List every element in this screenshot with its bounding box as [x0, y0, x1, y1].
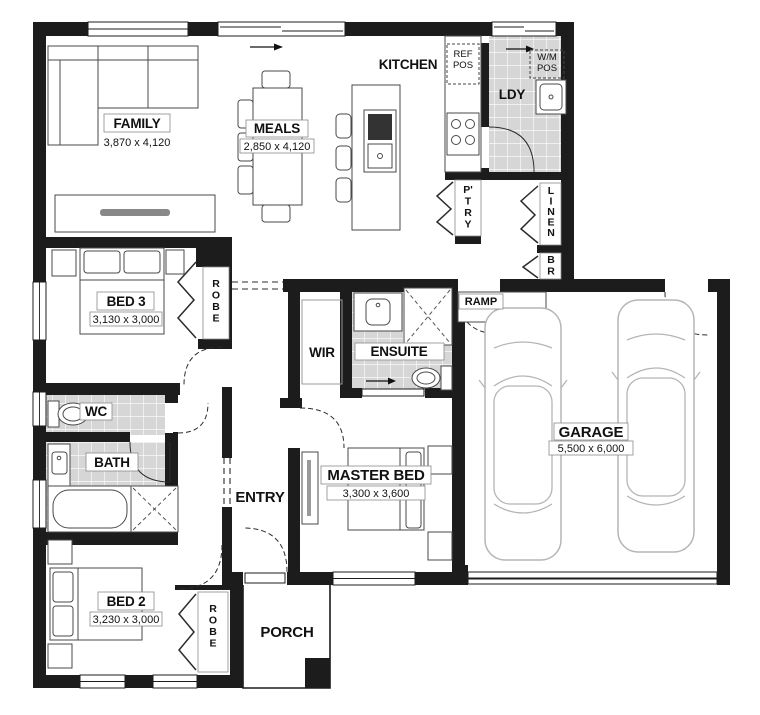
bed3-dims: 3,130 x 3,000	[93, 314, 160, 326]
bed2-label: BED 2	[107, 594, 146, 609]
cooktop	[447, 113, 479, 155]
bedside-table	[48, 644, 72, 668]
bed2-dims: 3,230 x 3,000	[93, 614, 160, 626]
floor-plan-drawing: FAMILY 3,870 x 4,120 MEALS 2,850 x 4,120…	[0, 0, 760, 715]
bed2-robe-label: ROBE	[209, 603, 217, 650]
ensuite-shower	[404, 288, 452, 345]
meals-dims: 2,850 x 4,120	[244, 141, 311, 153]
fridge-pos-label-1: REF	[454, 49, 473, 60]
toilet-tank	[48, 401, 59, 427]
bath-window	[33, 480, 46, 528]
ramp-label: RAMP	[465, 296, 497, 308]
fridge-pos-label-2: POS	[453, 60, 473, 71]
pillow	[53, 606, 73, 636]
bed2-window-left	[80, 675, 125, 688]
bedside-table	[48, 540, 72, 564]
entry-label: ENTRY	[235, 489, 284, 506]
porch-post	[305, 658, 330, 688]
bedside-table	[428, 446, 452, 474]
ensuite-label: ENSUITE	[370, 344, 427, 359]
bath-label: BATH	[94, 455, 130, 470]
bath-shower	[131, 486, 178, 532]
broom-label: BR	[547, 254, 555, 278]
master-bed-label: MASTER BED	[327, 467, 425, 484]
wir-label: WIR	[309, 345, 335, 360]
washer-pos-label-1: W/M	[537, 52, 557, 63]
porch-label: PORCH	[260, 624, 313, 641]
front-door-leaf	[245, 573, 285, 583]
basin	[52, 452, 67, 474]
master-bed-window	[333, 572, 415, 585]
pantry-label: P'TRY	[463, 184, 473, 231]
wc-label: WC	[85, 404, 108, 419]
family-label: FAMILY	[113, 116, 160, 131]
meals-label: MEALS	[254, 121, 300, 136]
floor-plan: FAMILY 3,870 x 4,120 MEALS 2,850 x 4,120…	[0, 0, 760, 715]
sink-bowl	[368, 114, 392, 140]
stool	[336, 178, 351, 202]
bed3-robe-label: ROBE	[212, 278, 220, 325]
kitchen-label: KITCHEN	[379, 57, 438, 72]
bedside-table	[52, 250, 76, 276]
bed3-window	[33, 282, 46, 340]
mirror	[307, 460, 311, 516]
family-dims: 3,870 x 4,120	[104, 137, 171, 149]
stool	[336, 114, 351, 138]
bedside-table	[166, 250, 184, 274]
washer-pos-label-2: POS	[537, 63, 557, 74]
laundry-label: LDY	[499, 87, 526, 102]
ensuite-toilet-bowl	[412, 368, 440, 388]
pillow	[53, 572, 73, 602]
master-bed-dims: 3,300 x 3,600	[343, 488, 410, 500]
linen-label: LINEN	[547, 185, 555, 239]
tv	[100, 209, 170, 216]
bed3-label: BED 3	[107, 294, 146, 309]
family-window	[88, 22, 188, 36]
garage-label: GARAGE	[559, 424, 624, 441]
wc-window	[33, 392, 46, 426]
pillow	[124, 251, 160, 273]
tv-unit	[55, 195, 215, 232]
pillow	[84, 251, 120, 273]
ensuite-toilet-tank	[441, 366, 452, 390]
garage-dims: 5,500 x 6,000	[558, 443, 625, 455]
bed2-window-right	[153, 675, 197, 688]
bedside-table	[428, 532, 452, 560]
stool	[336, 146, 351, 170]
garage-panel-door	[468, 572, 717, 584]
